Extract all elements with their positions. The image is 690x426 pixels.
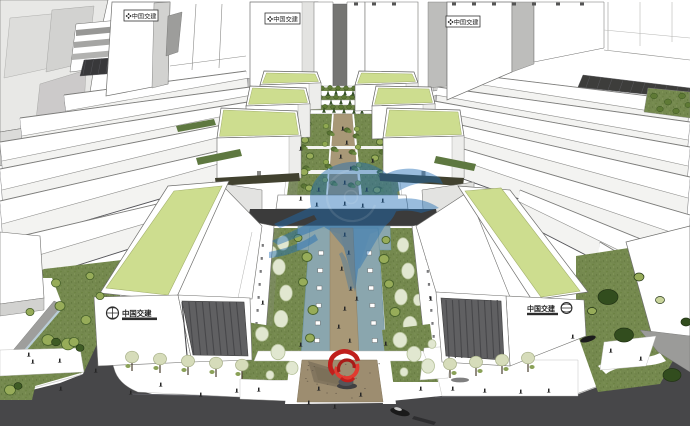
- svg-text:❖中国交建: ❖中国交建: [267, 16, 298, 24]
- svg-text:❖中国交建: ❖中国交建: [126, 13, 157, 21]
- svg-text:❖中国交建: ❖中国交建: [448, 19, 479, 27]
- svg-text:中国交建: 中国交建: [122, 309, 152, 318]
- svg-text:中国交建: 中国交建: [527, 304, 556, 313]
